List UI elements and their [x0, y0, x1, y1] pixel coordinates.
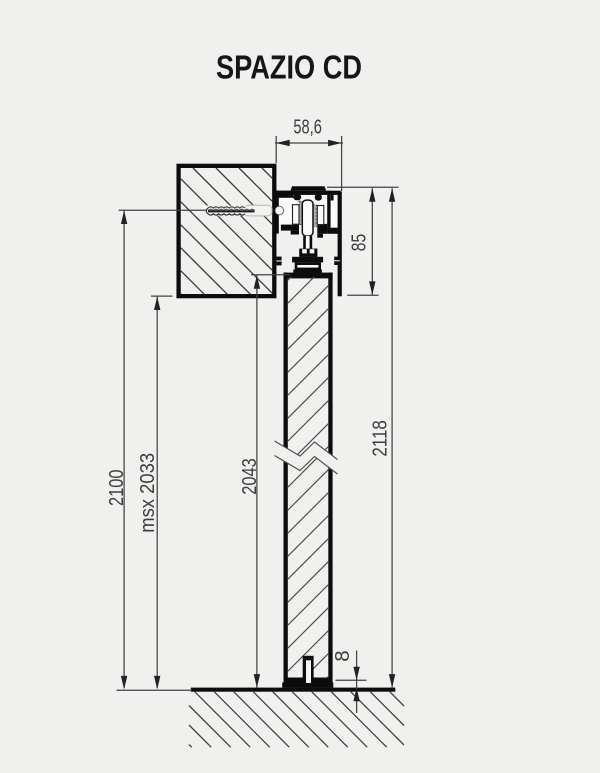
svg-text:58,6: 58,6	[293, 116, 322, 139]
svg-text:85: 85	[347, 234, 370, 252]
svg-text:2100: 2100	[105, 469, 128, 506]
svg-text:msx 2033: msx 2033	[136, 453, 159, 533]
svg-text:2043: 2043	[238, 458, 261, 495]
svg-text:SPAZIO CD: SPAZIO CD	[216, 48, 362, 85]
svg-text:2118: 2118	[368, 420, 391, 457]
svg-text:8: 8	[331, 650, 354, 661]
